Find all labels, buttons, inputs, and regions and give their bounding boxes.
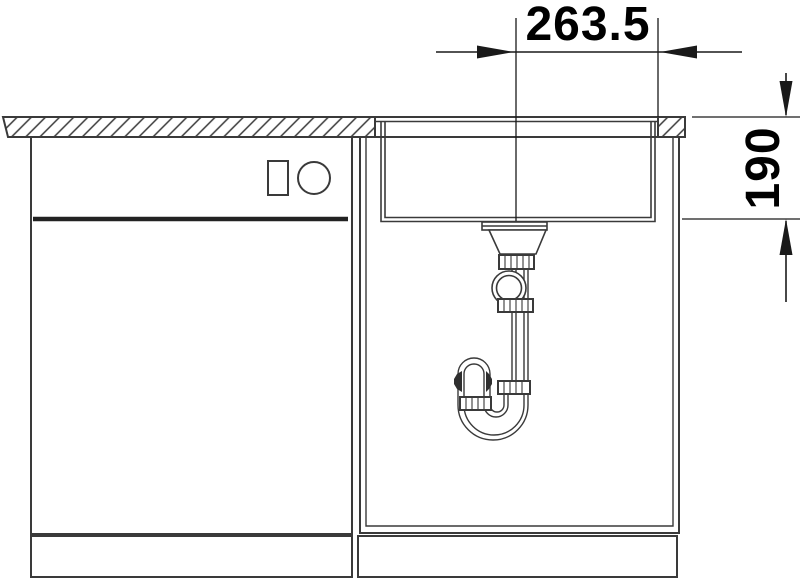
technical-drawing-canvas: 263.5 190 <box>0 0 800 581</box>
countertop-left-segment <box>3 117 375 137</box>
trap-inlet-nut <box>498 381 530 394</box>
dimension-depth-label: 190 <box>737 126 790 209</box>
drain-nut-2 <box>498 299 533 312</box>
trap-outlet-nut <box>460 397 491 410</box>
dimension-width-label: 263.5 <box>525 0 650 51</box>
countertop-right-segment <box>658 117 685 137</box>
sink-diagram: 263.5 190 <box>0 0 800 581</box>
strainer-cup <box>489 230 546 254</box>
drain-nut-1 <box>499 255 534 269</box>
